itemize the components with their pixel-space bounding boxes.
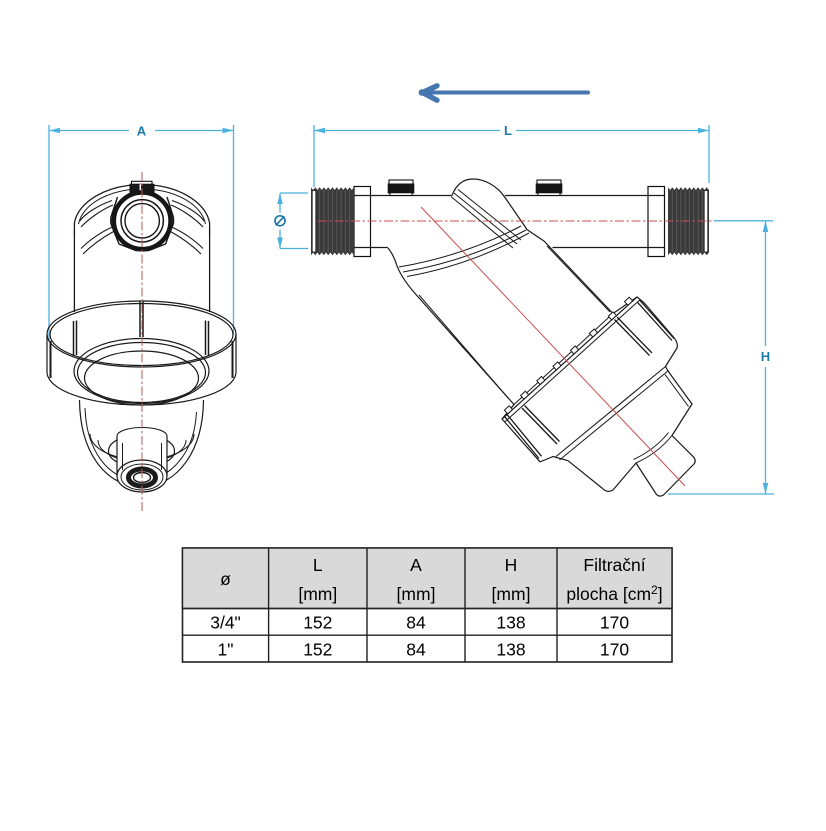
- svg-text:ø: ø: [220, 569, 231, 589]
- svg-text:Filtrační: Filtrační: [583, 555, 645, 575]
- svg-text:plocha [cm2]: plocha [cm2]: [566, 583, 662, 604]
- svg-text:H: H: [505, 555, 518, 575]
- svg-text:138: 138: [496, 640, 525, 660]
- svg-text:3/4": 3/4": [210, 613, 241, 633]
- svg-text:L: L: [313, 555, 323, 575]
- svg-text:84: 84: [406, 613, 426, 633]
- svg-text:H: H: [761, 349, 770, 364]
- svg-text:170: 170: [600, 613, 629, 633]
- svg-text:84: 84: [406, 640, 426, 660]
- svg-text:A: A: [137, 124, 147, 139]
- svg-text:1": 1": [218, 640, 234, 660]
- svg-text:152: 152: [303, 613, 332, 633]
- svg-text:L: L: [504, 123, 512, 138]
- svg-text:A: A: [410, 555, 422, 575]
- svg-text:[mm]: [mm]: [397, 584, 436, 604]
- svg-text:[mm]: [mm]: [298, 584, 337, 604]
- svg-text:170: 170: [600, 640, 629, 660]
- svg-text:[mm]: [mm]: [492, 584, 531, 604]
- svg-text:152: 152: [303, 640, 332, 660]
- svg-text:138: 138: [496, 613, 525, 633]
